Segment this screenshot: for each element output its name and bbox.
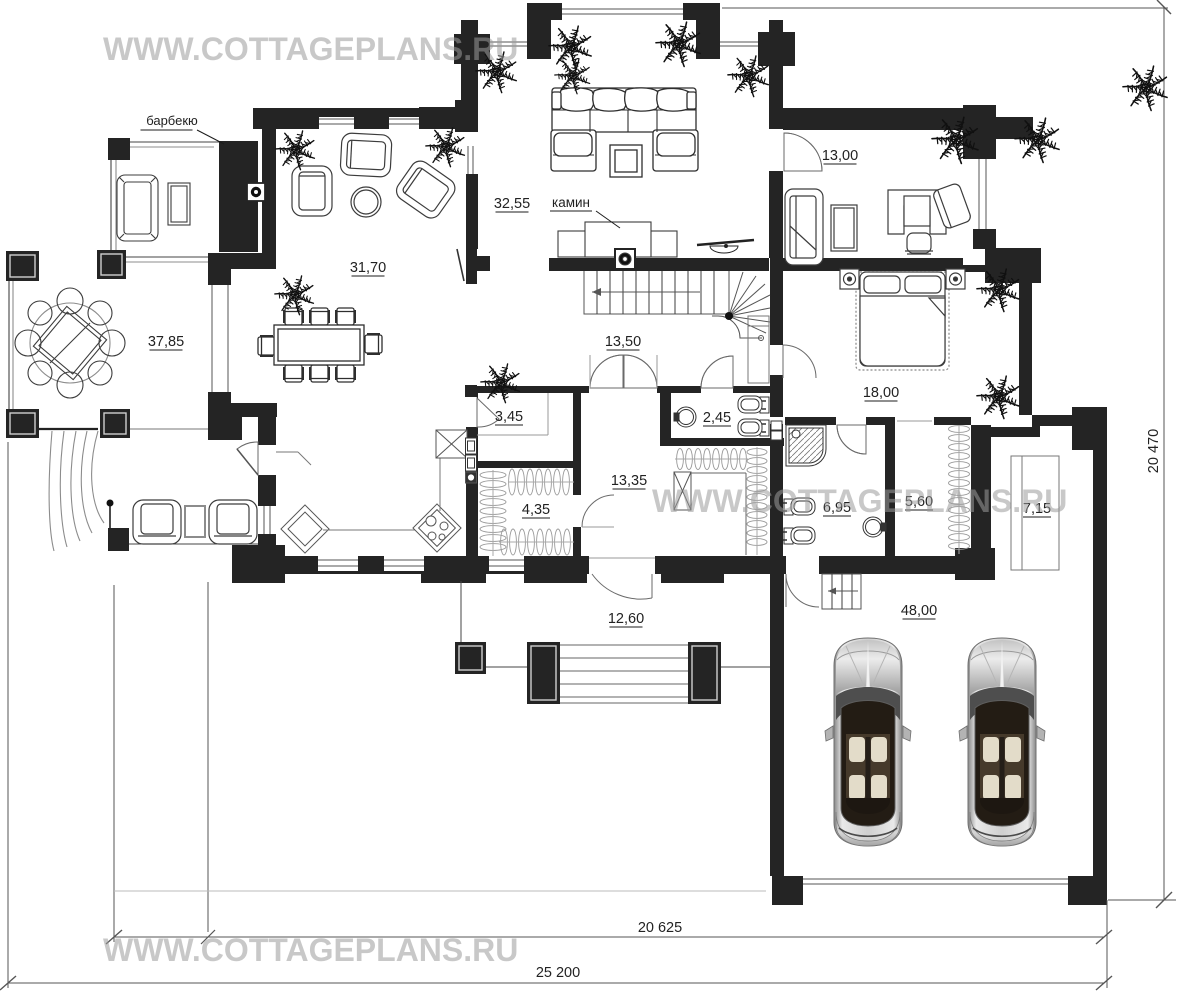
svg-text:3,45: 3,45 bbox=[495, 409, 523, 425]
svg-text:13,00: 13,00 bbox=[822, 148, 858, 164]
svg-text:20 470: 20 470 bbox=[1146, 429, 1162, 473]
svg-text:25 200: 25 200 bbox=[536, 965, 580, 981]
svg-text:37,85: 37,85 bbox=[148, 334, 184, 350]
svg-text:4,35: 4,35 bbox=[522, 502, 550, 518]
svg-text:12,60: 12,60 bbox=[608, 611, 644, 627]
svg-text:32,55: 32,55 bbox=[494, 196, 530, 212]
svg-text:13,50: 13,50 bbox=[605, 334, 641, 350]
svg-text:2,45: 2,45 bbox=[703, 410, 731, 426]
svg-text:48,00: 48,00 bbox=[901, 603, 937, 619]
svg-text:18,00: 18,00 bbox=[863, 385, 899, 401]
svg-text:20 625: 20 625 bbox=[638, 920, 682, 936]
svg-text:барбекю: барбекю bbox=[146, 113, 198, 128]
svg-text:13,35: 13,35 bbox=[611, 473, 647, 489]
svg-text:камин: камин bbox=[552, 195, 590, 210]
svg-text:31,70: 31,70 bbox=[350, 260, 386, 276]
